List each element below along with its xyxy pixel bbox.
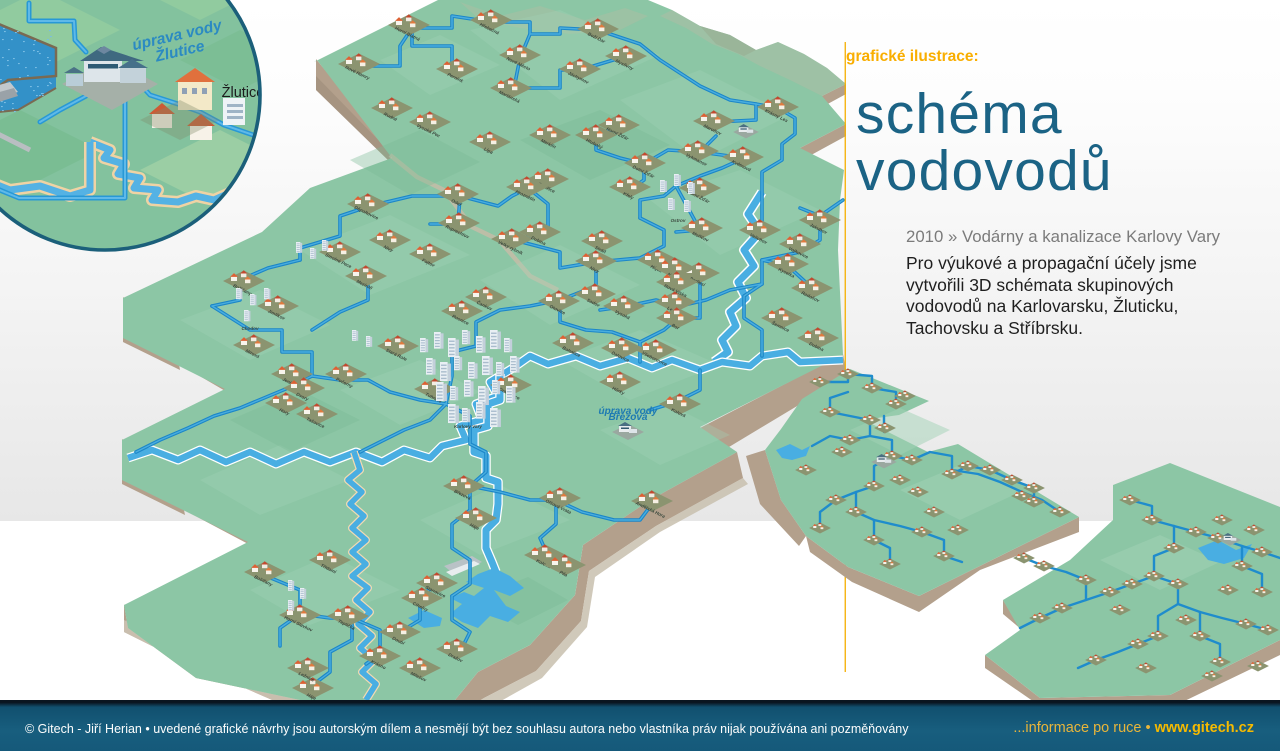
svg-text:Chodov: Chodov	[241, 326, 259, 331]
svg-text:Březová: Březová	[609, 412, 648, 423]
svg-text:Ostrov: Ostrov	[671, 218, 686, 223]
svg-text:Žlutice: Žlutice	[222, 84, 265, 101]
svg-text:Karlovy Vary: Karlovy Vary	[454, 424, 482, 429]
